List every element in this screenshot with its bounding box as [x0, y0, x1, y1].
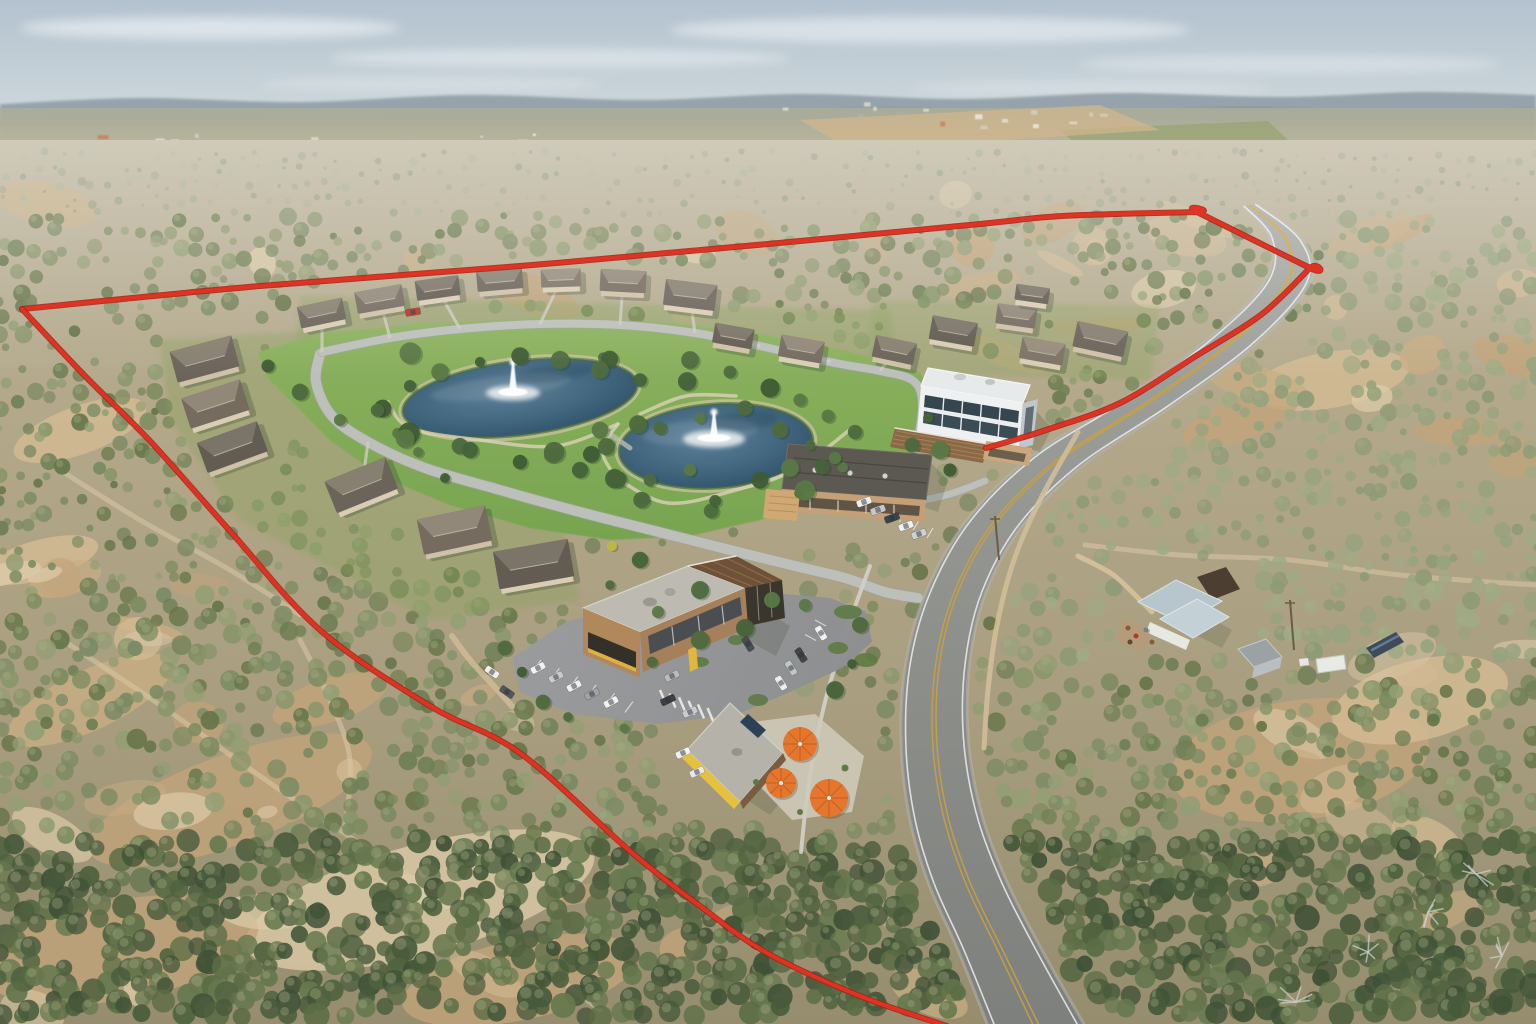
- atmosphere-haze: [0, 140, 1536, 380]
- condo-building: [763, 444, 948, 522]
- aerial-photo: [0, 0, 1536, 1024]
- aerial-photo-stage: [0, 0, 1536, 1024]
